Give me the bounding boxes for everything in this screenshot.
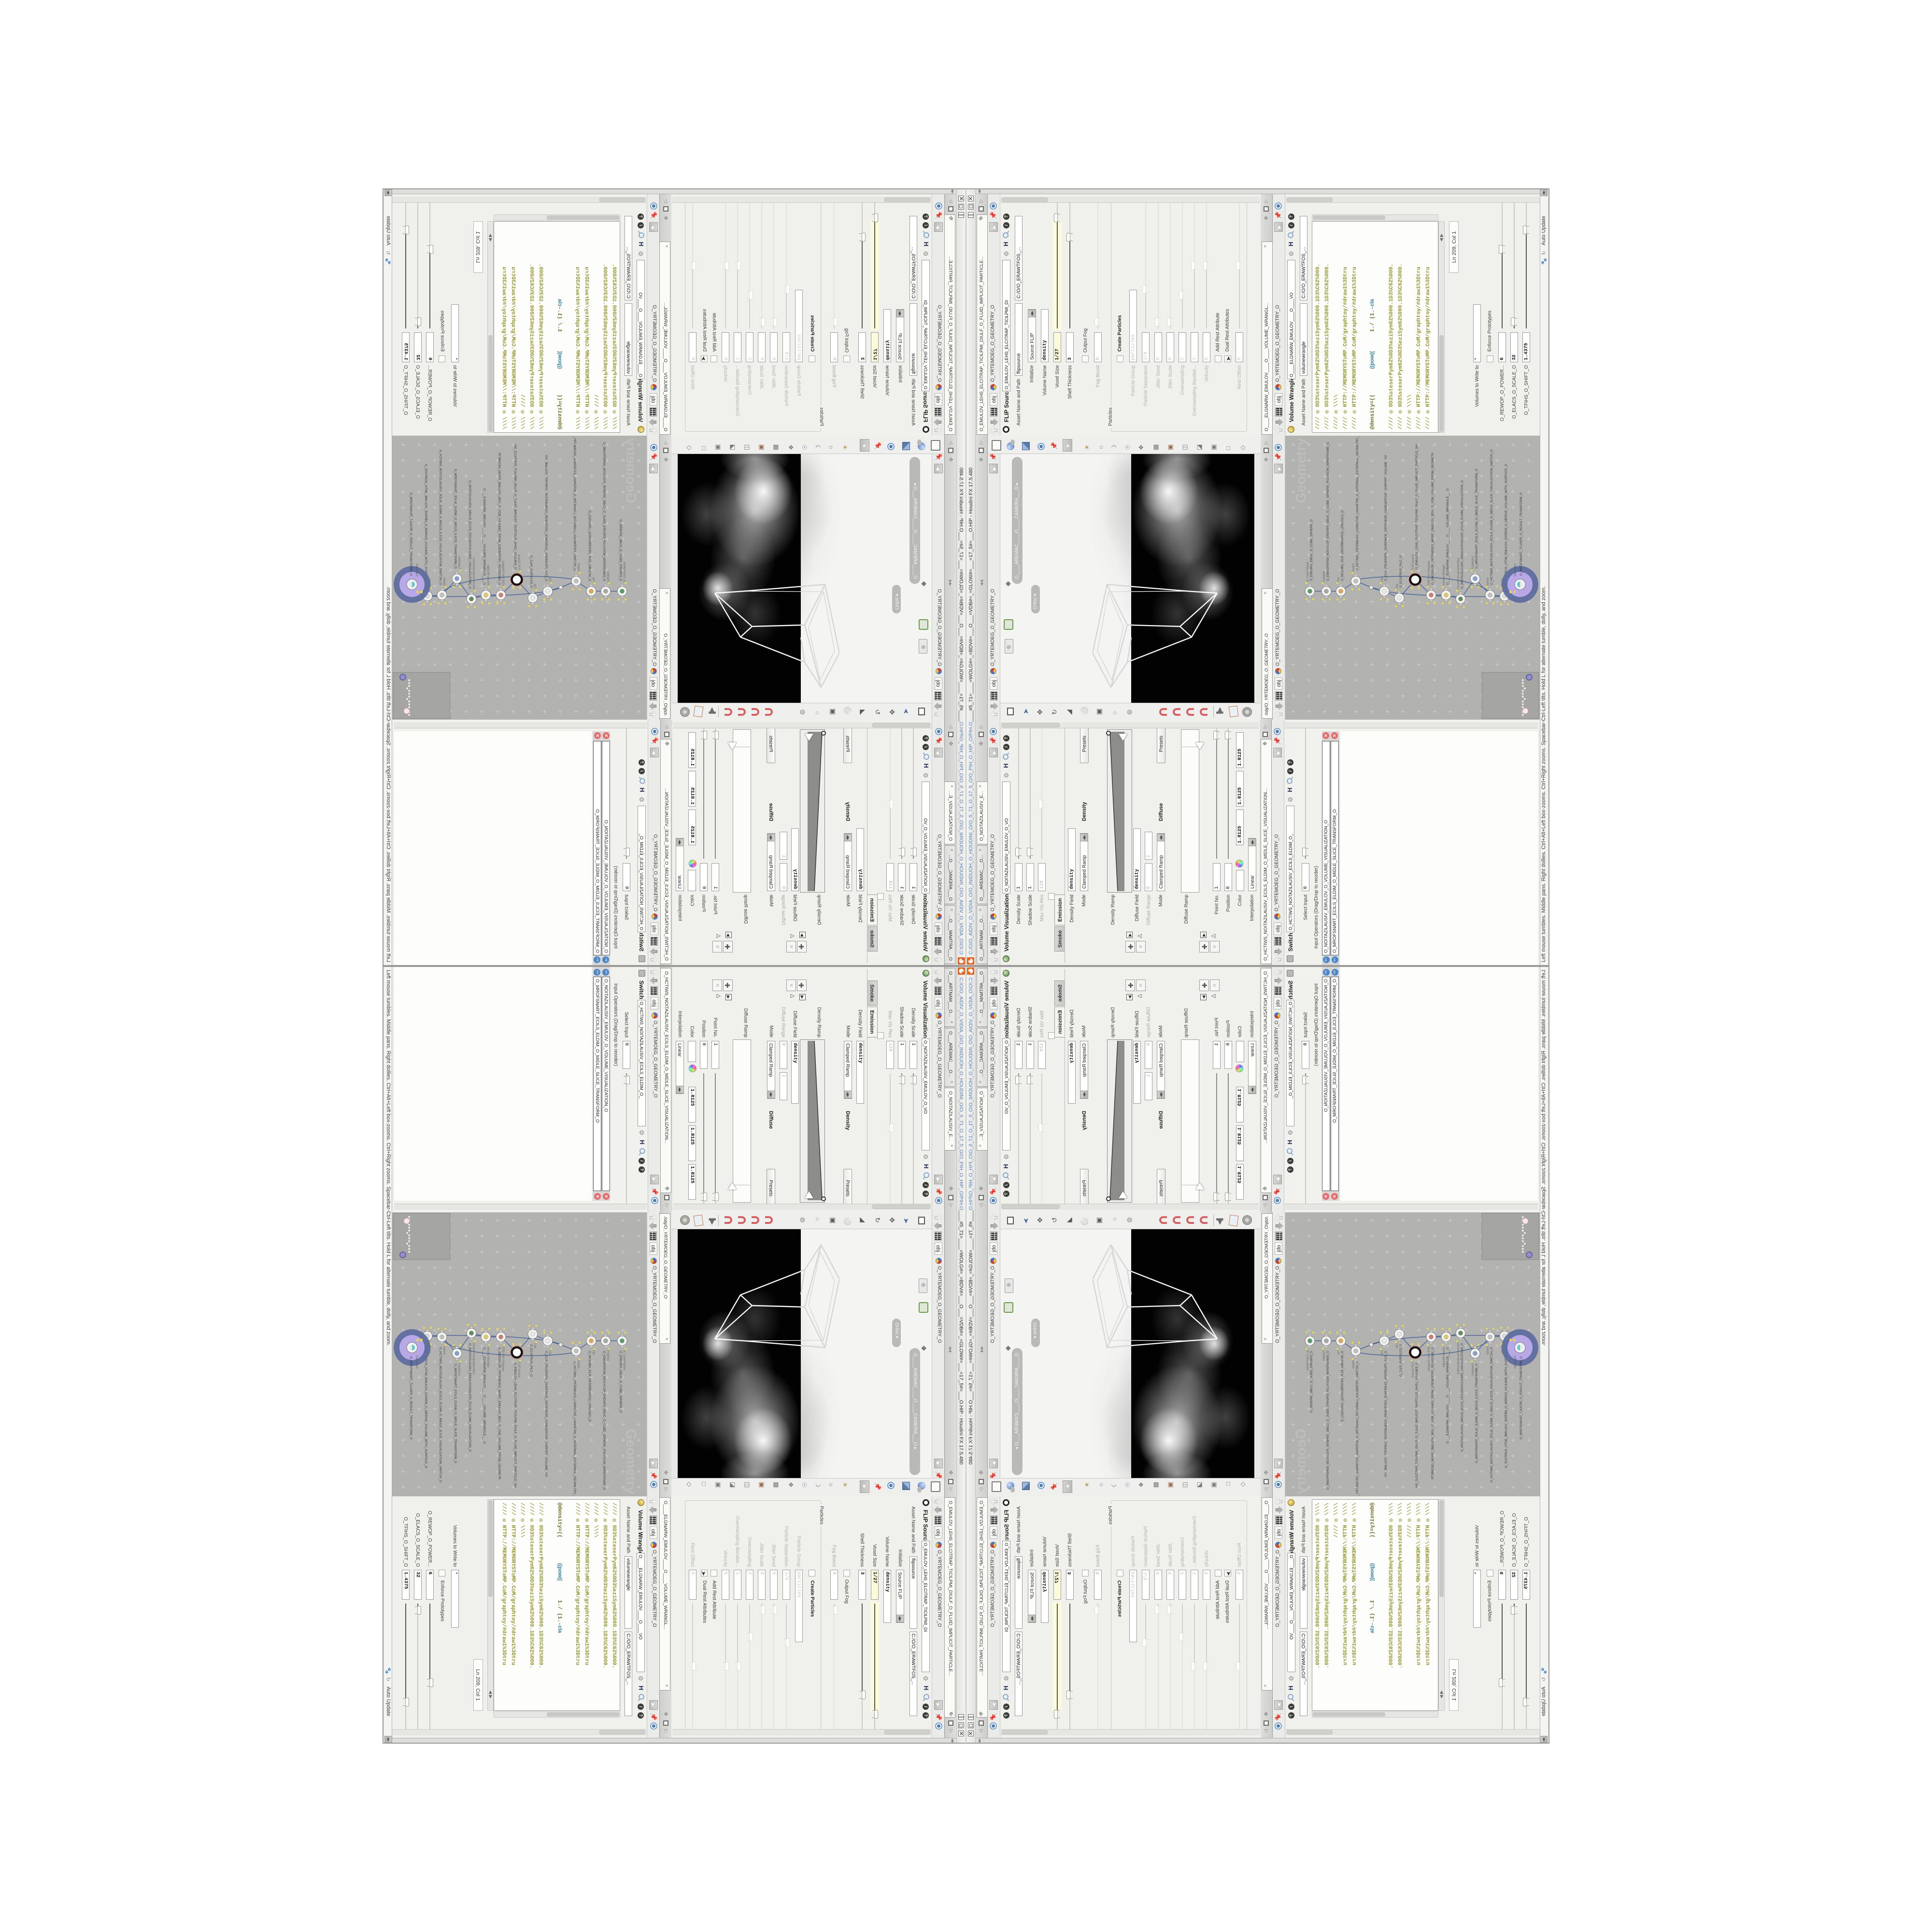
svg-text:O_ECAFRUS_PILC_O: O_ECAFRUS_PILC_O xyxy=(1399,555,1403,588)
svg-text:O_NCS/IBU_ELIF_DES/RBU/ROQ_LEN: O_NCS/IBU_ELIF_DES/RBU/ROQ_LEN/JS(C)_D xyxy=(588,1351,591,1422)
svg-text:O____ELGNARW_EMULOV____O____VO: O____ELGNARW_EMULOV____O____VOLUME_WRANG… xyxy=(1446,1347,1449,1444)
svg-text:O____ELGNARW_EMULOV____O____VO: O____ELGNARW_EMULOV____O____VOLUME_WRANG… xyxy=(1446,488,1449,585)
svg-text:O_SNOGILOP_YRTEMOEG_MORF_EMULO: O_SNOGILOP_YRTEMOEG_MORF_EMULOV_BDV_O_VD… xyxy=(1431,453,1435,585)
svg-text:O_ECAFRUS_HTIW_EMULOV_EGREM_O_: O_ECAFRUS_HTIW_EMULOV_EGREM_O_MERGE_VOLU… xyxy=(1505,1346,1508,1468)
svg-text:O_MROFSNART_TLUSER_O_RESULT_TR: O_MROFSNART_TLUSER_O_RESULT_TRANSFORM_O xyxy=(1520,493,1523,576)
svg-text:O_EREHPS_EBUC_D_CUBE_SPHERE_O: O_EREHPS_EBUC_D_CUBE_SPHERE_O xyxy=(619,519,622,581)
svg-text:FLIP Source: FLIP Source xyxy=(517,1362,520,1378)
svg-text:O_ECAFRUS_PILC_O: O_ECAFRUS_PILC_O xyxy=(1399,1344,1403,1377)
svg-text:O_EMULOV_LEHS_ELCITRAP_TICILPM: O_EMULOV_LEHS_ELCITRAP_TICILPMI_DIULF_O_… xyxy=(1415,1363,1419,1488)
svg-text:O____ELGNARW_EMULOV____O____VO: O____ELGNARW_EMULOV____O____VOLUME_WRANG… xyxy=(483,488,486,585)
svg-text:O_MROFSNART_TLUSER_O_RESULT_TR: O_MROFSNART_TLUSER_O_RESULT_TRANSFORM_O xyxy=(409,1356,412,1439)
svg-text:Clip: Clip xyxy=(1396,583,1399,589)
svg-text:Switch: Switch xyxy=(442,1346,445,1355)
svg-text:Clip: Clip xyxy=(1381,1350,1384,1355)
svg-text:PolyWire: PolyWire xyxy=(1323,570,1326,582)
svg-text:Clip: Clip xyxy=(1381,577,1384,582)
svg-text:O_MROFSNART_ECILS_ELDIM_O_MIDL: O_MROFSNART_ECILS_ELDIM_O_MIDLE_SLICE_TR… xyxy=(1475,1364,1478,1463)
svg-text:O_NCS/IBU_ELIF_DES/RBU/ROQ_LEN: O_NCS/IBU_ELIF_DES/RBU/ROQ_LEN/JS(C)_D xyxy=(588,510,591,581)
svg-text:O_HCTIWS_NOITAZILAUSIV_ECILS_E: O_HCTIWS_NOITAZILAUSIV_ECILS_ELDIM_O_MID… xyxy=(439,1347,442,1482)
svg-text:VDB from Polygons: VDB from Polygons xyxy=(1428,561,1431,586)
svg-text:O_ECA_FRUERIPIL_DURFNICE_GRTEH: O_ECA_FRUERIPIL_DURFNICE_GRTEHEIRI_OISBU… xyxy=(1384,455,1388,581)
svg-text:VolumeVisualizationSlice: VolumeVisualizationSlice xyxy=(1457,1342,1460,1375)
svg-text:PolyWire: PolyWire xyxy=(606,1350,609,1362)
svg-text:O_ECA_FRUERIPIL_DURFNICE_GRTEH: O_ECA_FRUERIPIL_DURFNICE_GRTEHEIRI_OISBU… xyxy=(544,1351,548,1477)
svg-text:VDB from Polygons: VDB from Polygons xyxy=(501,561,504,586)
svg-text:VolumeVisualizationSlice: VolumeVisualizationSlice xyxy=(1457,557,1460,590)
svg-text:O_EREHPS_EBUC_D_CUBE_SPHERE_O: O_EREHPS_EBUC_D_CUBE_SPHERE_O xyxy=(1310,519,1313,581)
svg-text:O_SNOGILOP_YRTEMOEG_MORF_EMULO: O_SNOGILOP_YRTEMOEG_MORF_EMULOV_BDV_O_VD… xyxy=(497,453,501,585)
svg-text:O_EMULOV_LEHS_ELCITRAP_TICILPM: O_EMULOV_LEHS_ELCITRAP_TICILPMI_DIULF_O_… xyxy=(1415,444,1419,569)
svg-text:O_ECAFRUS_HTIW_EMULOV_EGREM_O_: O_ECAFRUS_HTIW_EMULOV_EGREM_O_MERGE_VOLU… xyxy=(1505,464,1508,586)
svg-text:at_CubeSphere: at_CubeSphere xyxy=(623,1350,625,1371)
svg-text:O_EREHPS_EBUC_D_CUBE_SPHERE_O: O_EREHPS_EBUC_D_CUBE_SPHERE_O xyxy=(619,1351,622,1413)
svg-text:O_HCTIWS_NOITAZILAUSIV_ECILS_E: O_HCTIWS_NOITAZILAUSIV_ECILS_ELDIM_O_MID… xyxy=(439,450,442,585)
svg-text:Clip: Clip xyxy=(1396,1343,1399,1349)
svg-text:O_EMULOV_LEHS_ELCITRAP_TICILPM: O_EMULOV_LEHS_ELCITRAP_TICILPMI_DIULF_O_… xyxy=(513,444,517,569)
svg-text:Transform: Transform xyxy=(1514,1355,1517,1368)
svg-text:Transform: Transform xyxy=(415,564,418,577)
svg-text:O_HCTIWS_YRTEMOEG_LANRETXE_LAN: O_HCTIWS_YRTEMOEG_LANRETXE_LANRETNI_O_IN… xyxy=(573,1361,576,1496)
svg-text:Switch: Switch xyxy=(577,563,580,572)
svg-text:O_ECAFRUS_PILC_O: O_ECAFRUS_PILC_O xyxy=(529,1344,533,1377)
svg-text:O_ECA_FRUERIPIL_DURFNICE_GRTEH: O_ECA_FRUERIPIL_DURFNICE_GRTEHEIRI_OISBU… xyxy=(544,455,548,581)
svg-text:at_CubeSphere: at_CubeSphere xyxy=(1307,1350,1309,1371)
svg-text:Transform: Transform xyxy=(1514,564,1517,577)
svg-text:Switch: Switch xyxy=(1487,1346,1490,1355)
svg-text:Transform: Transform xyxy=(457,1363,460,1376)
svg-text:Switch: Switch xyxy=(1352,563,1355,572)
svg-text:O_MROFSNART_ECILS_ELDIM_O_MIDL: O_MROFSNART_ECILS_ELDIM_O_MIDLE_SLICE_TR… xyxy=(1475,469,1478,568)
svg-text:PolyWire: PolyWire xyxy=(1323,1350,1326,1362)
svg-text:O_HCTIWS_NOITAZILAUSIV_ECILS_E: O_HCTIWS_NOITAZILAUSIV_ECILS_ELDIM_O_MID… xyxy=(1490,450,1493,585)
svg-text:Clip: Clip xyxy=(533,583,536,589)
svg-text:VDB from Polygons: VDB from Polygons xyxy=(1428,1346,1431,1371)
svg-text:O_EMASFERIW_NOGYLOP_EREHPS_EBU: O_EMASFERIW_NOGYLOP_EREHPS_EBUC_D_CUBE_S… xyxy=(1326,442,1330,581)
svg-text:Geometry: Geometry xyxy=(1293,438,1309,503)
svg-text:FLIP Source: FLIP Source xyxy=(1412,554,1415,570)
svg-text:Geometry: Geometry xyxy=(623,438,639,503)
svg-text:VolumeVisualizationSlice: VolumeVisualizationSlice xyxy=(472,557,475,590)
svg-text:File: File xyxy=(592,577,595,582)
svg-text:PolyWire: PolyWire xyxy=(606,570,609,582)
svg-text:Clip: Clip xyxy=(533,1343,536,1349)
svg-text:Transform: Transform xyxy=(1472,556,1475,569)
svg-text:O_ECA_FRUERIPIL_DURFNICE_GRTEH: O_ECA_FRUERIPIL_DURFNICE_GRTEHEIRI_OISBU… xyxy=(1384,1351,1388,1477)
svg-text:O_ECAFRUS_PILC_O: O_ECAFRUS_PILC_O xyxy=(529,555,533,588)
svg-text:O_ECAFRUS_HTIW_EMULOV_EGREM_O_: O_ECAFRUS_HTIW_EMULOV_EGREM_O_MERGE_VOLU… xyxy=(424,464,427,586)
svg-text:Switch: Switch xyxy=(1487,577,1490,586)
svg-text:O_HCTIWS_YRTEMOEG_LANRETXE_LAN: O_HCTIWS_YRTEMOEG_LANRETXE_LANRETNI_O_IN… xyxy=(573,436,576,571)
svg-text:Transform: Transform xyxy=(1472,1363,1475,1376)
svg-text:Volume Wrangle: Volume Wrangle xyxy=(486,1346,489,1368)
svg-text:O_NCS/IBU_ELIF_DES/RBU/ROQ_LEN: O_NCS/IBU_ELIF_DES/RBU/ROQ_LEN/JS(C)_D xyxy=(1341,510,1344,581)
svg-text:Clip: Clip xyxy=(548,1350,551,1355)
svg-text:O_NOITAZILAUSIV_EMULOVOISLICEI: O_NOITAZILAUSIV_EMULOVOISLICEI_ECIJS_ELD… xyxy=(1461,480,1464,589)
svg-text:at_CubeSphere: at_CubeSphere xyxy=(623,561,625,582)
svg-text:VolumeVisualizationSlice: VolumeVisualizationSlice xyxy=(472,1342,475,1375)
svg-text:FLIP Source: FLIP Source xyxy=(517,554,520,570)
svg-text:Switch: Switch xyxy=(442,577,445,586)
svg-text:Volume Wrangle: Volume Wrangle xyxy=(1443,564,1446,586)
svg-text:Geometry: Geometry xyxy=(1293,1429,1309,1494)
svg-text:O_NOITAZILAUSIV_EMULOVOISLICEI: O_NOITAZILAUSIV_EMULOVOISLICEI_ECIJS_ELD… xyxy=(468,1343,471,1452)
svg-text:O_EMASFERIW_NOGYLOP_EREHPS_EBU: O_EMASFERIW_NOGYLOP_EREHPS_EBUC_D_CUBE_S… xyxy=(602,442,606,581)
svg-text:Transform: Transform xyxy=(457,556,460,569)
svg-text:Switch: Switch xyxy=(577,1360,580,1369)
svg-text:File: File xyxy=(1337,577,1340,582)
svg-text:O_HCTIWS_YRTEMOEG_LANRETXE_LAN: O_HCTIWS_YRTEMOEG_LANRETXE_LANRETNI_O_IN… xyxy=(1356,436,1359,571)
svg-text:O_MROFSNART_TLUSER_O_RESULT_TR: O_MROFSNART_TLUSER_O_RESULT_TRANSFORM_O xyxy=(409,493,412,576)
svg-text:O_EREHPS_EBUC_D_CUBE_SPHERE_O: O_EREHPS_EBUC_D_CUBE_SPHERE_O xyxy=(1310,1351,1313,1413)
svg-text:File: File xyxy=(592,1350,595,1355)
svg-text:O_NOITAZILAUSIV_EMULOVOISLICEI: O_NOITAZILAUSIV_EMULOVOISLICEI_ECIJS_ELD… xyxy=(1461,1343,1464,1452)
svg-text:O_MROFSNART_TLUSER_O_RESULT_TR: O_MROFSNART_TLUSER_O_RESULT_TRANSFORM_O xyxy=(1520,1356,1523,1439)
svg-text:O____ELGNARW_EMULOV____O____VO: O____ELGNARW_EMULOV____O____VOLUME_WRANG… xyxy=(483,1347,486,1444)
svg-text:Switch: Switch xyxy=(1352,1360,1355,1369)
svg-text:O_HCTIWS_NOITAZILAUSIV_ECILS_E: O_HCTIWS_NOITAZILAUSIV_ECILS_ELDIM_O_MID… xyxy=(1490,1347,1493,1482)
svg-text:VDB from Polygons: VDB from Polygons xyxy=(501,1346,504,1371)
svg-text:Geometry: Geometry xyxy=(623,1429,639,1494)
svg-text:O_NOITAZILAUSIV_EMULOVOISLICEI: O_NOITAZILAUSIV_EMULOVOISLICEI_ECIJS_ELD… xyxy=(468,480,471,589)
svg-text:Transform: Transform xyxy=(415,1355,418,1368)
svg-text:O_SNOGILOP_YRTEMOEG_MORF_EMULO: O_SNOGILOP_YRTEMOEG_MORF_EMULOV_BDV_O_VD… xyxy=(1431,1347,1435,1479)
svg-text:O_SNOGILOP_YRTEMOEG_MORF_EMULO: O_SNOGILOP_YRTEMOEG_MORF_EMULOV_BDV_O_VD… xyxy=(497,1347,501,1479)
svg-text:O_EMASFERIW_NOGYLOP_EREHPS_EBU: O_EMASFERIW_NOGYLOP_EREHPS_EBUC_D_CUBE_S… xyxy=(1326,1351,1330,1490)
svg-text:Volume Wrangle: Volume Wrangle xyxy=(486,564,489,586)
svg-text:O_EMASFERIW_NOGYLOP_EREHPS_EBU: O_EMASFERIW_NOGYLOP_EREHPS_EBUC_D_CUBE_S… xyxy=(602,1351,606,1490)
svg-text:O_HCTIWS_YRTEMOEG_LANRETXE_LAN: O_HCTIWS_YRTEMOEG_LANRETXE_LANRETNI_O_IN… xyxy=(1356,1361,1359,1496)
svg-text:O_NCS/IBU_ELIF_DES/RBU/ROQ_LEN: O_NCS/IBU_ELIF_DES/RBU/ROQ_LEN/JS(C)_D xyxy=(1341,1351,1344,1422)
svg-text:File: File xyxy=(1337,1350,1340,1355)
svg-text:O_EMULOV_LEHS_ELCITRAP_TICILPM: O_EMULOV_LEHS_ELCITRAP_TICILPMI_DIULF_O_… xyxy=(513,1363,517,1488)
svg-text:O_MROFSNART_ECILS_ELDIM_O_MIDL: O_MROFSNART_ECILS_ELDIM_O_MIDLE_SLICE_TR… xyxy=(454,1364,457,1463)
svg-text:O_MROFSNART_ECILS_ELDIM_O_MIDL: O_MROFSNART_ECILS_ELDIM_O_MIDLE_SLICE_TR… xyxy=(454,469,457,568)
svg-text:O_ECAFRUS_HTIW_EMULOV_EGREM_O_: O_ECAFRUS_HTIW_EMULOV_EGREM_O_MERGE_VOLU… xyxy=(424,1346,427,1468)
svg-text:Clip: Clip xyxy=(548,577,551,582)
svg-text:Volume Wrangle: Volume Wrangle xyxy=(1443,1346,1446,1368)
svg-text:at_CubeSphere: at_CubeSphere xyxy=(1307,561,1309,582)
svg-text:FLIP Source: FLIP Source xyxy=(1412,1362,1415,1378)
